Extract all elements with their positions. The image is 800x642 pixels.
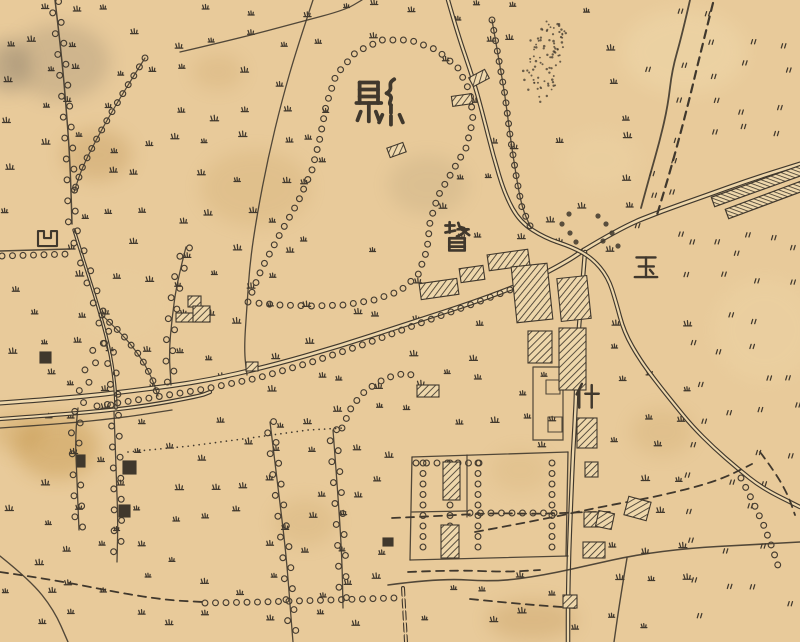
building-street-3 xyxy=(577,418,597,448)
building-sw-3 xyxy=(119,505,130,517)
building-center xyxy=(417,385,439,397)
building-street-4 xyxy=(585,462,598,477)
building-street-2 xyxy=(559,328,586,390)
map-image xyxy=(0,0,800,642)
building-se-1 xyxy=(596,511,615,530)
building-sw-2 xyxy=(123,461,136,474)
building-street-1 xyxy=(528,331,552,363)
building-compound-2 xyxy=(441,525,459,558)
building-row-2 xyxy=(459,265,485,282)
building-west-3 xyxy=(193,306,210,322)
building-street-7 xyxy=(563,595,577,608)
building-junction-1 xyxy=(511,263,553,322)
building-w-small xyxy=(40,352,51,363)
building-street-6 xyxy=(583,542,605,558)
map-viewport: 縣 督 玉 什 凹 xyxy=(0,0,800,642)
building-west-1 xyxy=(188,296,201,307)
building-road-small xyxy=(246,362,258,371)
building-sw-1 xyxy=(77,455,85,467)
building-compound-1 xyxy=(443,462,460,500)
building-s-small xyxy=(383,538,393,546)
building-junction-2 xyxy=(557,276,591,322)
building-north-1 xyxy=(451,94,472,107)
